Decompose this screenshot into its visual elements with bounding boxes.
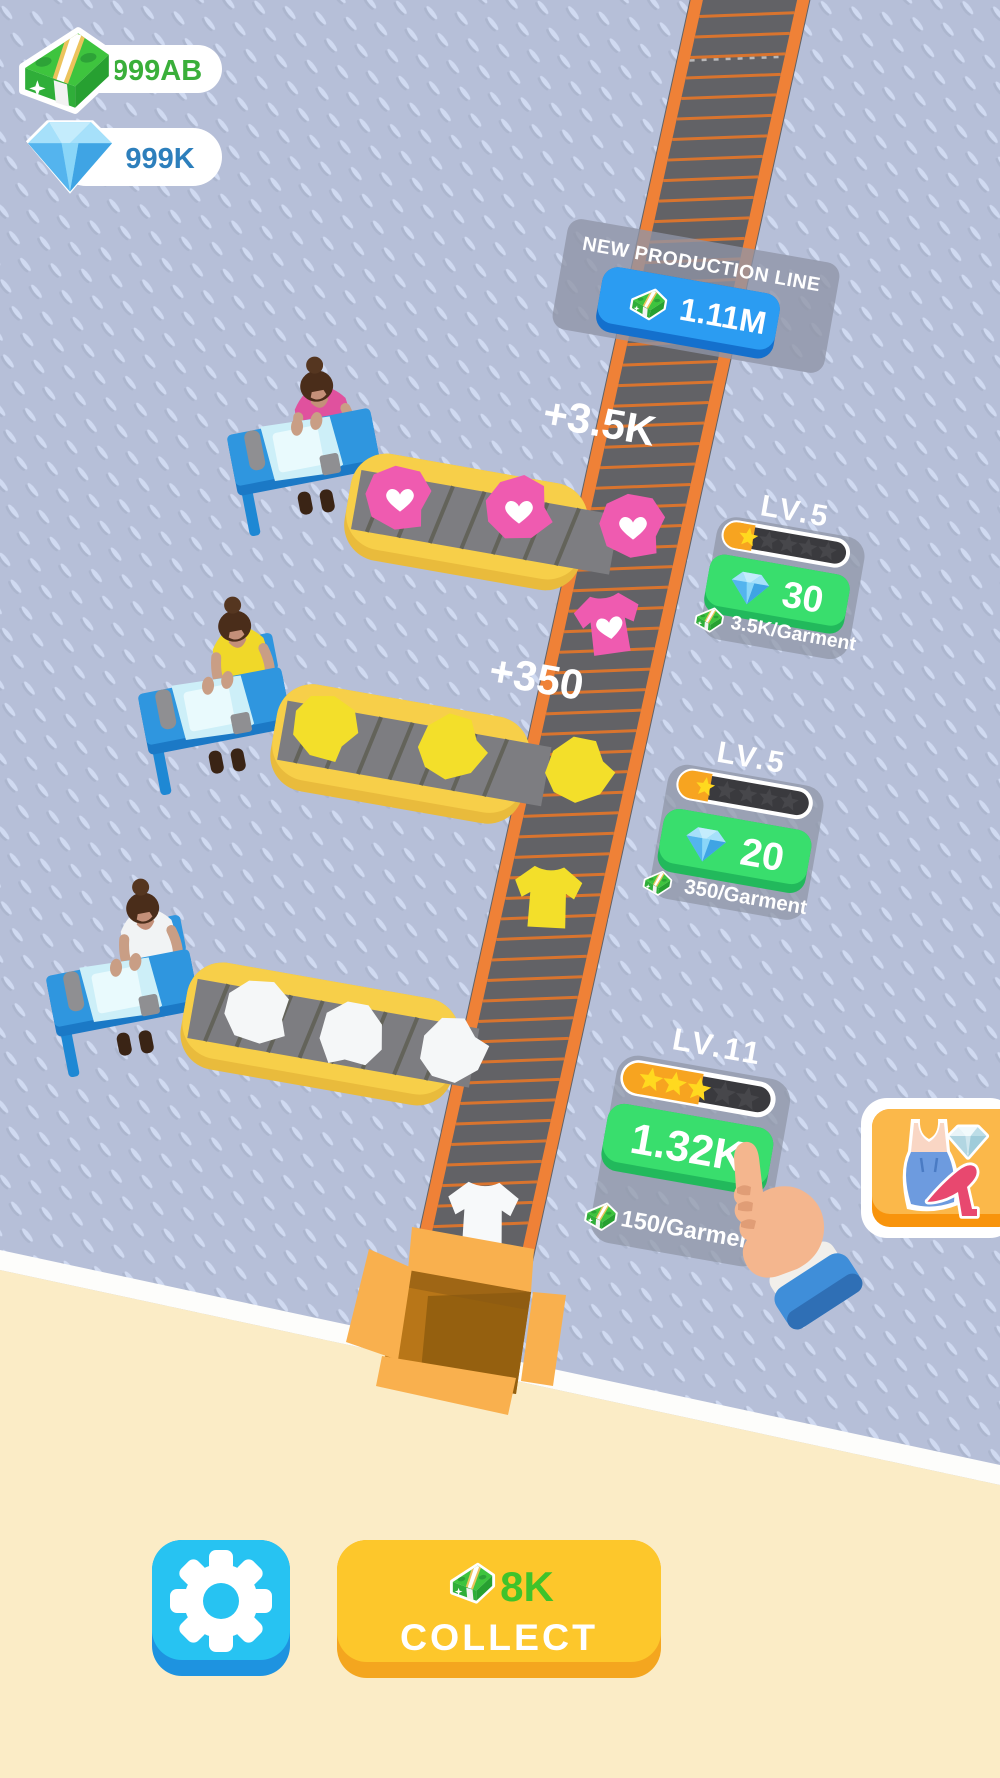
svg-text:999AB: 999AB: [112, 55, 202, 87]
svg-text:999K: 999K: [125, 143, 194, 175]
svg-text:20: 20: [737, 830, 787, 880]
svg-text:COLLECT: COLLECT: [400, 1616, 598, 1658]
svg-text:8K: 8K: [500, 1563, 554, 1610]
svg-text:30: 30: [779, 573, 827, 621]
